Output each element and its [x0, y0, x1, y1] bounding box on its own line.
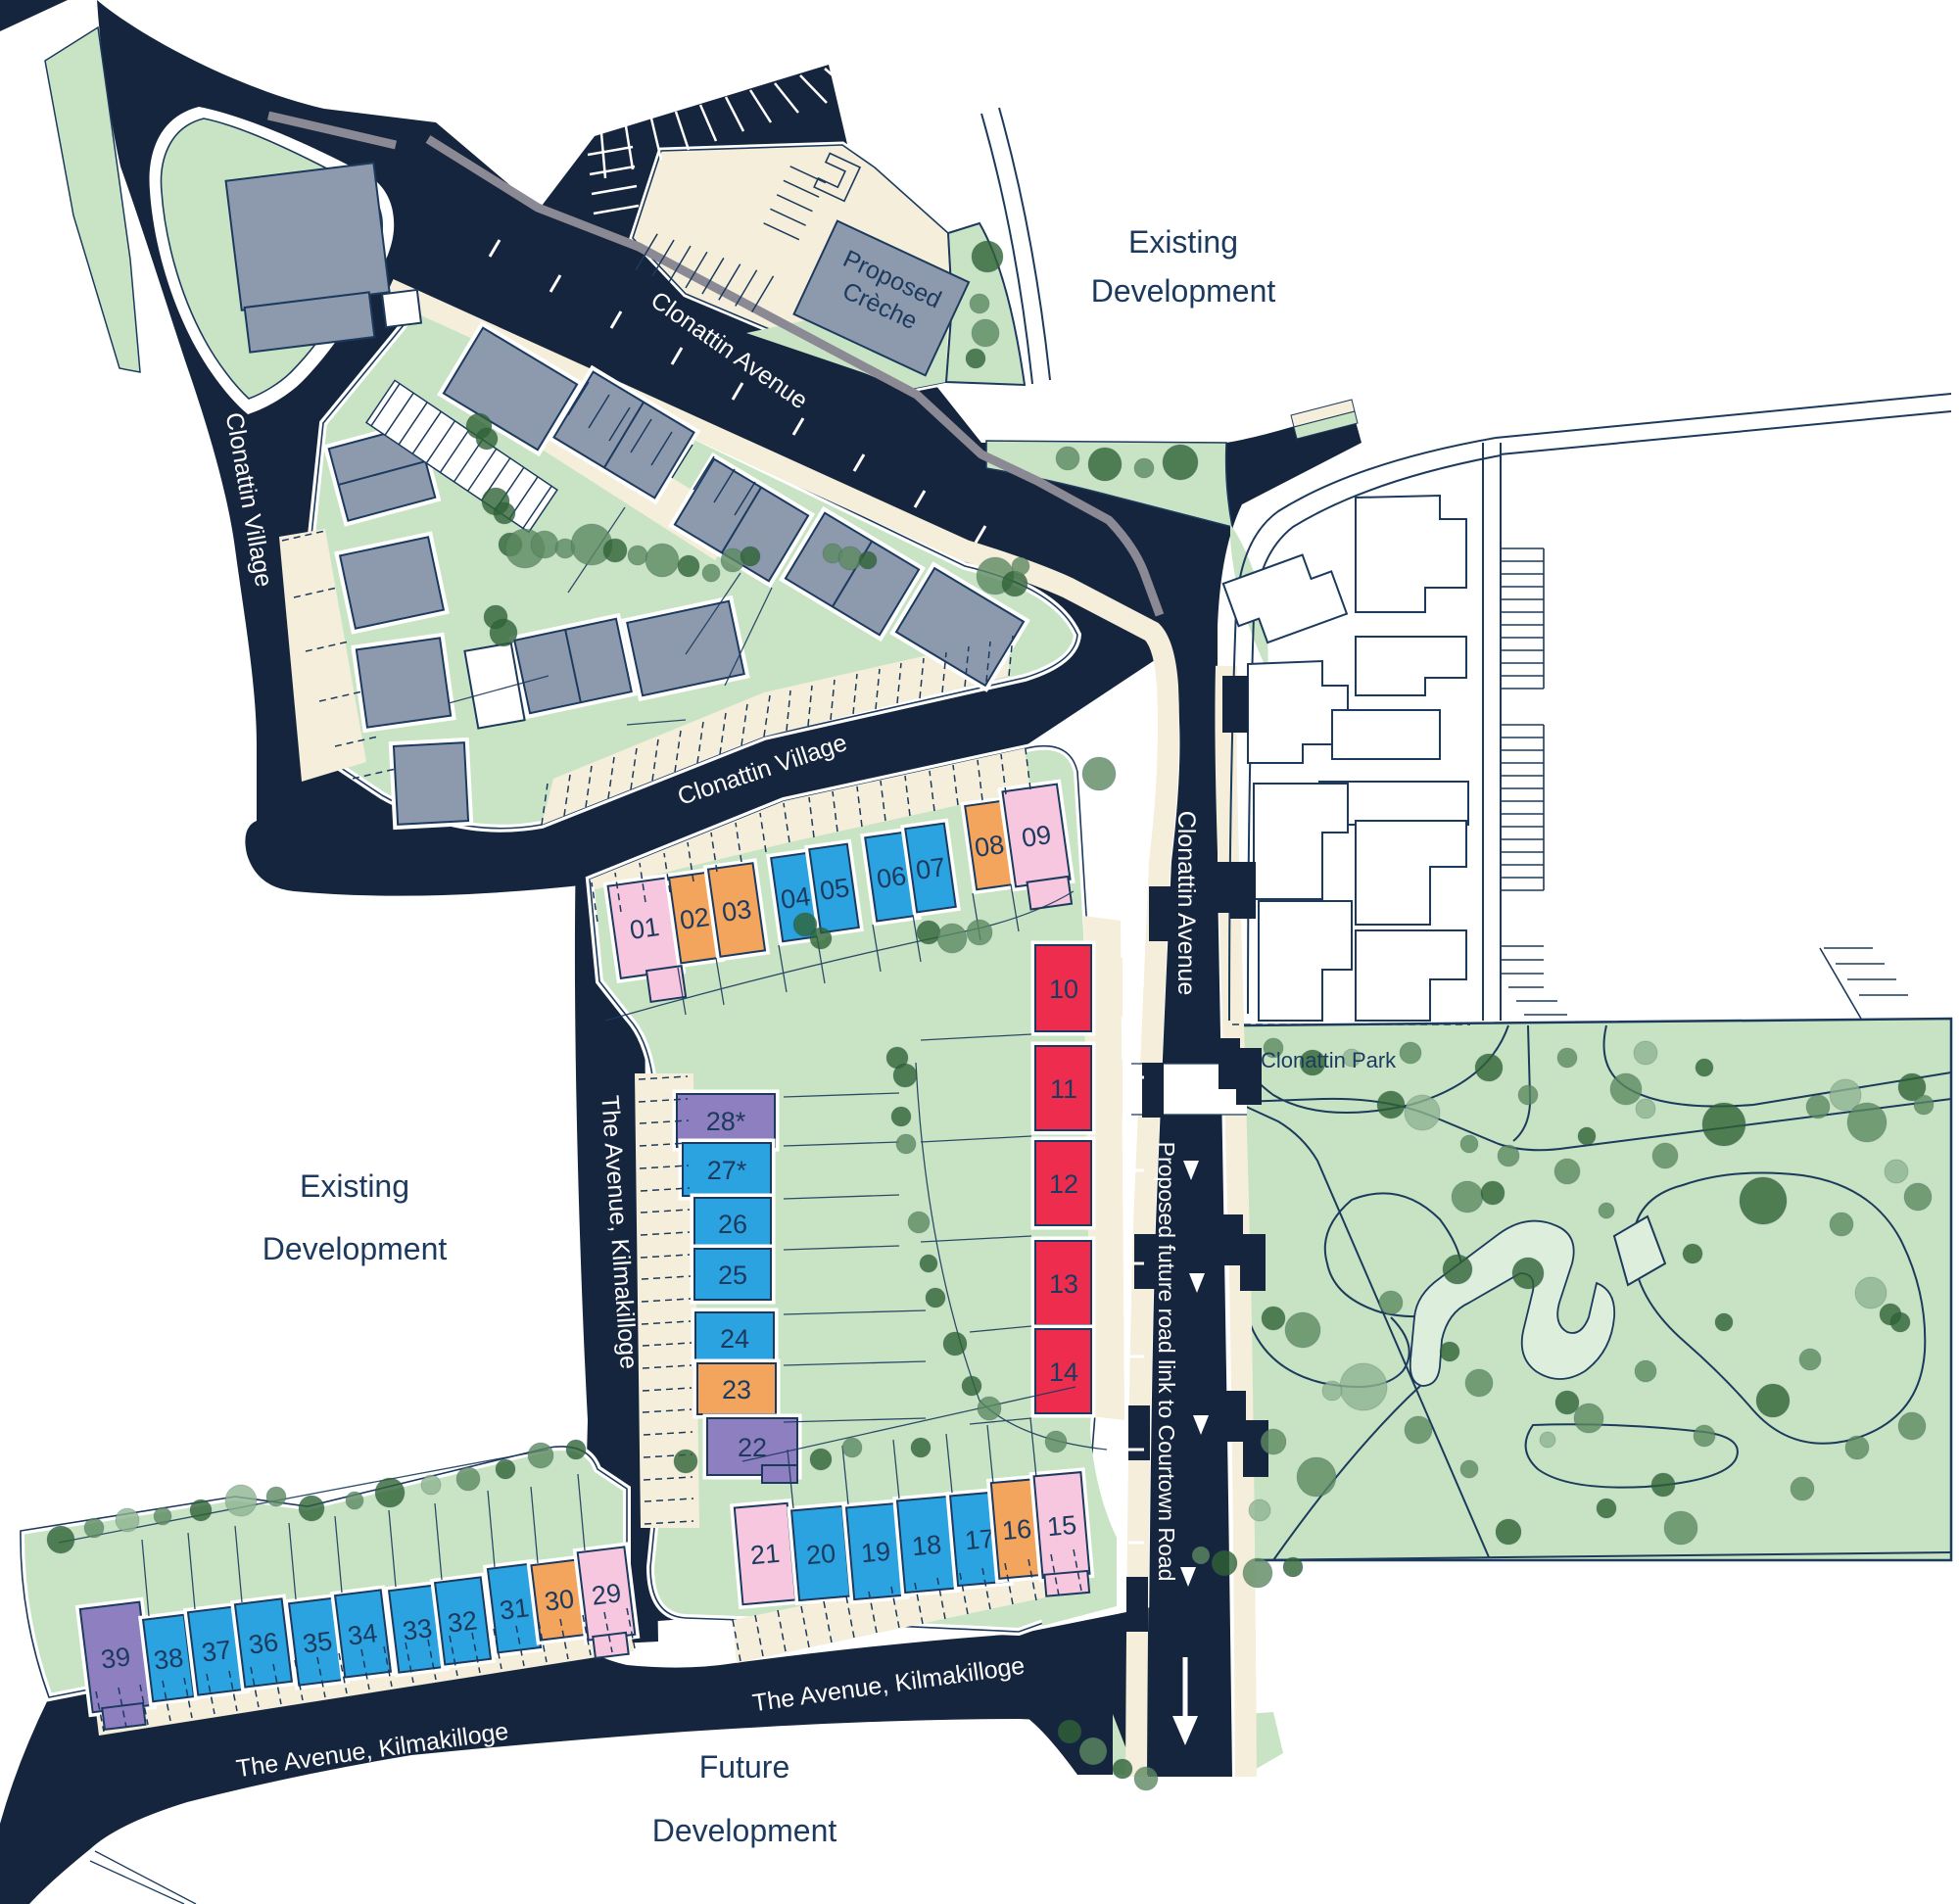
svg-text:18: 18: [911, 1530, 943, 1562]
svg-text:Development: Development: [263, 1231, 448, 1266]
svg-text:Proposed future road link to C: Proposed future road link to Courtown Ro…: [1154, 1142, 1179, 1582]
svg-text:20: 20: [805, 1539, 837, 1571]
svg-text:16: 16: [1001, 1514, 1033, 1547]
svg-text:23: 23: [722, 1375, 751, 1404]
svg-text:27*: 27*: [707, 1156, 747, 1185]
svg-text:22: 22: [738, 1433, 767, 1462]
svg-text:Future: Future: [699, 1749, 789, 1785]
svg-text:Development: Development: [1091, 273, 1276, 309]
svg-text:30: 30: [543, 1584, 575, 1616]
svg-text:36: 36: [247, 1627, 279, 1659]
svg-text:35: 35: [301, 1626, 333, 1658]
svg-text:19: 19: [860, 1537, 892, 1569]
svg-text:38: 38: [152, 1642, 184, 1675]
svg-text:12: 12: [1049, 1169, 1078, 1199]
svg-text:26: 26: [718, 1210, 747, 1239]
svg-text:31: 31: [498, 1593, 530, 1625]
svg-text:06: 06: [875, 861, 908, 894]
svg-text:21: 21: [749, 1539, 782, 1571]
svg-text:28*: 28*: [706, 1107, 746, 1136]
svg-text:Development: Development: [652, 1813, 837, 1848]
svg-text:03: 03: [720, 894, 753, 928]
svg-text:Existing: Existing: [1128, 224, 1238, 260]
svg-text:14: 14: [1049, 1357, 1078, 1387]
svg-text:02: 02: [678, 902, 711, 935]
svg-text:15: 15: [1046, 1510, 1078, 1543]
svg-text:Clonattin Park: Clonattin Park: [1261, 1048, 1397, 1072]
svg-text:25: 25: [718, 1261, 747, 1290]
svg-text:Clonattin Avenue: Clonattin Avenue: [1172, 811, 1200, 996]
svg-text:11: 11: [1050, 1074, 1077, 1104]
svg-text:01: 01: [628, 912, 661, 945]
svg-text:39: 39: [99, 1642, 131, 1674]
svg-text:09: 09: [1020, 820, 1053, 853]
svg-text:Existing: Existing: [300, 1168, 409, 1204]
svg-text:29: 29: [590, 1578, 622, 1610]
svg-text:04: 04: [779, 881, 812, 915]
svg-text:10: 10: [1049, 975, 1078, 1004]
svg-text:37: 37: [200, 1635, 232, 1667]
svg-text:05: 05: [818, 873, 851, 906]
svg-text:24: 24: [720, 1324, 749, 1354]
svg-text:07: 07: [914, 852, 947, 885]
svg-text:32: 32: [446, 1605, 478, 1638]
svg-text:34: 34: [346, 1618, 378, 1650]
svg-text:08: 08: [973, 830, 1006, 863]
svg-text:13: 13: [1049, 1269, 1078, 1299]
